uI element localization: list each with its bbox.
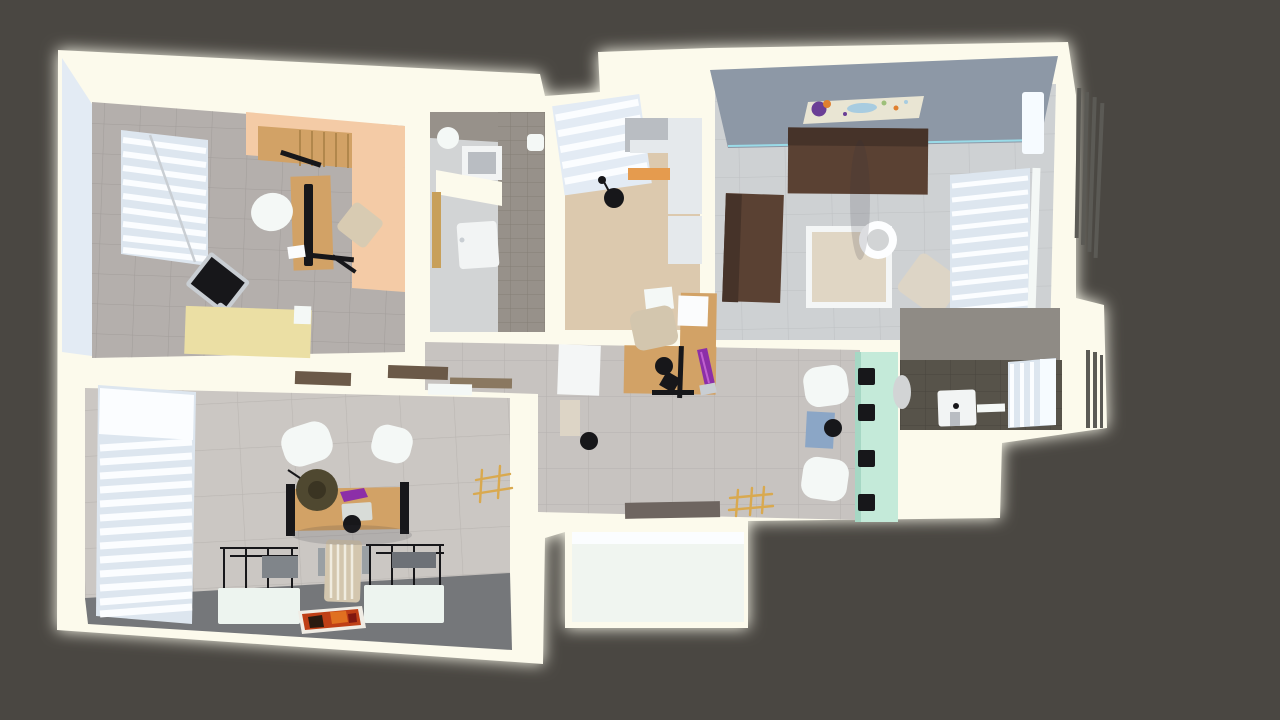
office-sideboard: [184, 306, 312, 358]
workstation-stool: [655, 357, 673, 375]
studio-beam-1: [295, 371, 351, 386]
desk-left-front: [218, 588, 300, 624]
hall-cabinet: [557, 344, 601, 395]
kitchen-lower-cabinet: [668, 216, 702, 264]
bathroom-faucet: [460, 238, 465, 243]
west-wall-face: [62, 58, 92, 356]
bathroom-toilet: [527, 134, 544, 151]
floor-plan-canvas[interactable]: [0, 0, 1280, 720]
kitchen-pendant-lamp: [604, 188, 624, 208]
hall-armchair-2: [799, 455, 850, 503]
office-keyboard: [287, 245, 306, 259]
media-box-1: [858, 368, 875, 385]
desk-right-front: [364, 585, 444, 623]
office-printer: [294, 306, 312, 325]
studio-desk-leg-left: [286, 484, 295, 536]
room-kitchen: [552, 94, 702, 330]
washroom-louver-fins: [1086, 350, 1103, 428]
washroom-oval-mirror: [893, 375, 911, 409]
studio-beam-2: [388, 365, 448, 380]
desk-left-panel: [262, 556, 298, 578]
floor-plan-render: [0, 0, 1280, 720]
hall-cabinet-low: [560, 400, 580, 436]
pendant-mount: [598, 176, 606, 184]
chair-arm-right: [362, 546, 369, 574]
workstation-papers: [677, 295, 708, 326]
studio-desk-lamp-inner: [308, 481, 326, 499]
desk-right-panel: [392, 552, 436, 568]
hall-black-chair-2: [824, 419, 842, 437]
studio-desk-leg-right: [400, 482, 409, 534]
chair-arm-left: [318, 548, 325, 576]
hall-black-chair: [580, 432, 598, 450]
bathroom-washbasin: [456, 221, 499, 270]
shower-drain: [468, 152, 496, 174]
bathroom-door: [432, 192, 441, 268]
washroom-shelf: [977, 404, 1005, 413]
mint-media-wall: [855, 352, 898, 522]
entry-porch: [572, 532, 744, 622]
media-box-4: [858, 494, 875, 511]
kitchen-wood-accent: [628, 168, 670, 180]
washroom-drain: [953, 403, 959, 409]
office-window-blinds: [121, 130, 208, 266]
kitchen-tall-cabinet: [668, 118, 702, 214]
living-louver-blinds: [950, 168, 1041, 320]
kitchen-microwave: [630, 140, 668, 153]
room-living: [710, 56, 1058, 340]
living-window: [1022, 92, 1044, 154]
porch-floor: [572, 532, 744, 622]
media-box-2: [858, 404, 875, 421]
media-box-3: [858, 450, 875, 467]
room-office: [92, 102, 405, 358]
studio-ac-unit: [428, 384, 472, 396]
washroom-tap: [950, 412, 960, 426]
hall-doormat: [625, 501, 720, 519]
washroom-upper-tiles: [900, 308, 1060, 360]
room-bathroom: [430, 112, 545, 332]
room-studio: [85, 365, 512, 650]
porch-step: [572, 532, 744, 544]
studio-window-blinds: [96, 385, 196, 624]
living-round-lamp-inner: [867, 229, 889, 251]
washroom-window: [1008, 358, 1056, 428]
bathroom-round-mirror: [437, 127, 459, 149]
